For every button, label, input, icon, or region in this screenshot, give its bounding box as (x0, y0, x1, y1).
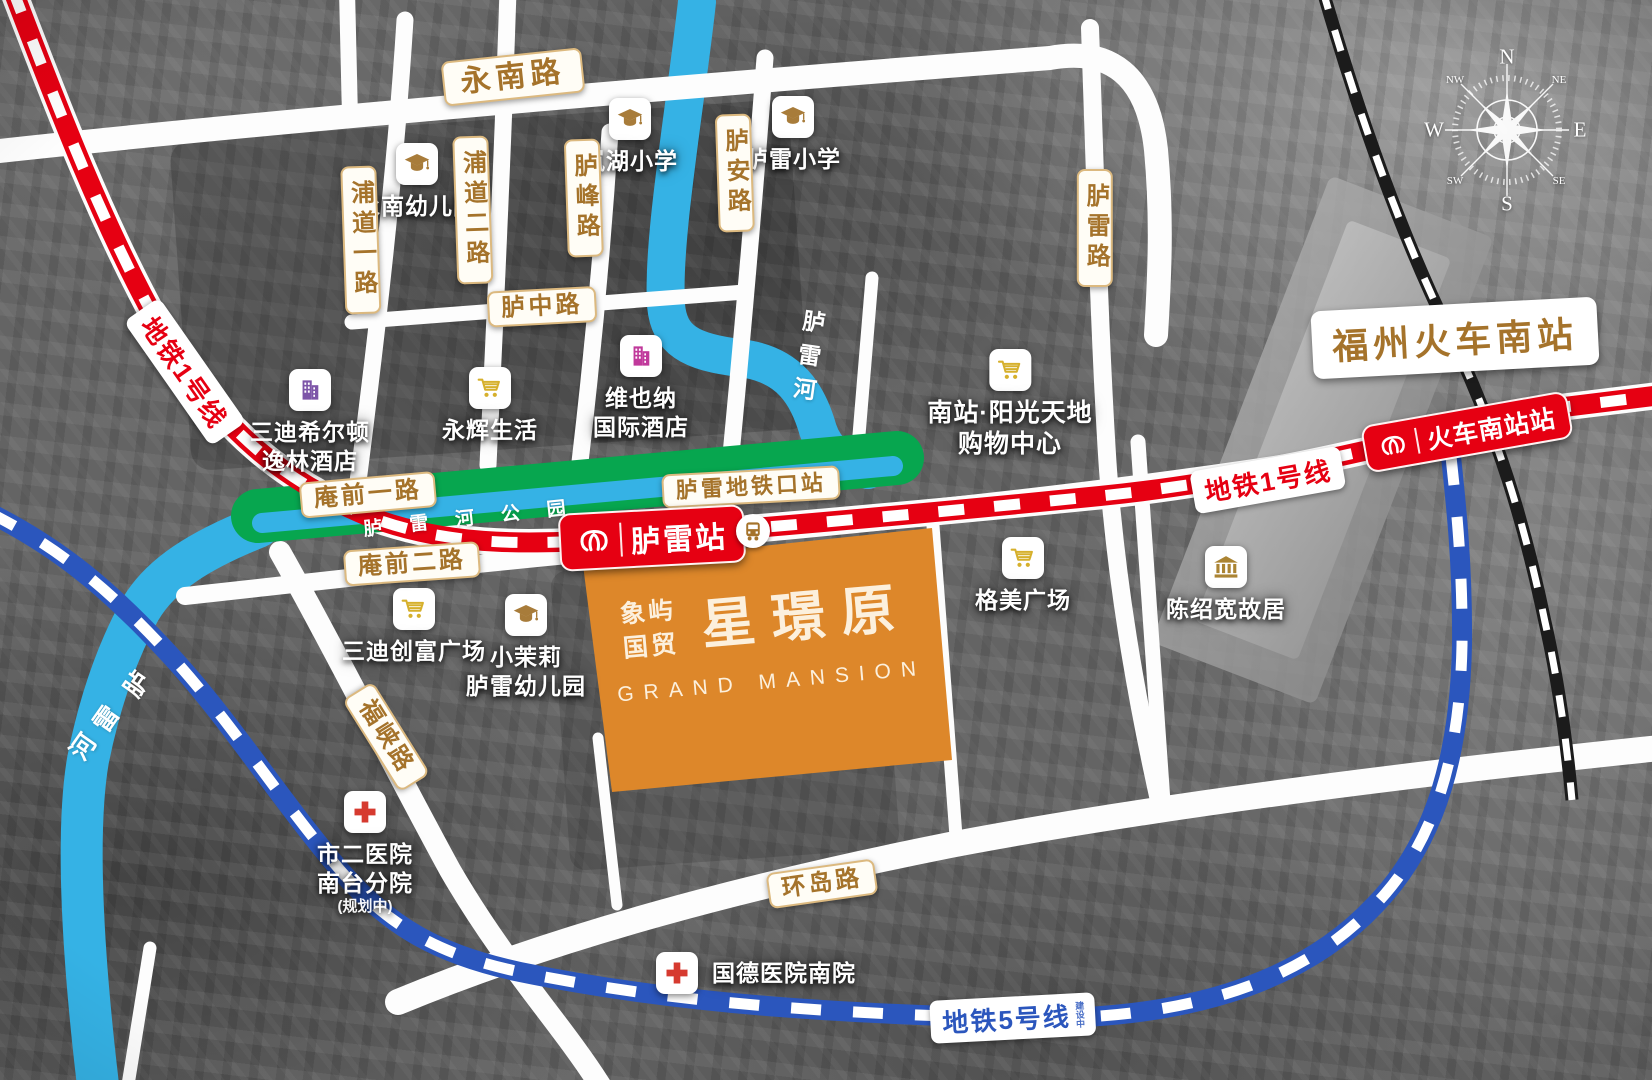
red-cross-icon (656, 952, 698, 994)
poi-hospital2-branch: 市二医院 南台分院 (规划中) (317, 791, 413, 916)
road-label-lufeng: 胪峰路 (564, 138, 604, 257)
poi-label: 市二医院 南台分院 (规划中) (317, 840, 413, 916)
poi-gemei-plaza: 格美广场 (975, 537, 1071, 615)
poi-label: 三迪希尔顿 逸林酒店 (250, 418, 370, 476)
road-label-pudao2: 浦道二路 (452, 135, 494, 284)
compass-se: SE (1553, 175, 1566, 187)
poi-label-line1: 三迪希尔顿 (250, 418, 370, 447)
compass-ne: NE (1552, 74, 1567, 86)
location-map: N E S W NW NE SW SE 永南路 浦道一路 浦道二路 胪峰路 胪安… (0, 0, 1652, 1080)
brand-line1: 象屿 (619, 594, 678, 633)
graduation-cap-icon (396, 143, 438, 185)
graduation-cap-icon (505, 594, 547, 636)
poi-hilton-hotel: 三迪希尔顿 逸林酒店 (250, 369, 370, 476)
bus-icon (741, 519, 765, 543)
road-label-pudao1: 浦道一路 (340, 165, 382, 314)
property-name: 星璟原 (699, 581, 913, 653)
metro-logo-icon (576, 523, 612, 559)
cart-icon (469, 367, 511, 409)
building-icon (289, 369, 331, 411)
lulei-station-badge: 胪雷站 (558, 504, 747, 572)
compass-sw: SW (1447, 175, 1464, 187)
line5-label-text: 地铁5号线 (941, 997, 1071, 1041)
building-icon (620, 335, 662, 377)
classical-building-icon (1205, 546, 1247, 588)
lulei-station-name: 胪雷站 (630, 512, 728, 561)
poi-label: 南站·阳光天地 购物中心 (927, 398, 1092, 461)
poi-sandi-plaza: 三迪创富广场 (342, 588, 486, 666)
line5-status-note: 建设中 (1074, 1001, 1084, 1028)
badge-divider (1414, 428, 1420, 454)
poi-label: 格美广场 (975, 586, 1071, 615)
compass-w: W (1424, 118, 1444, 143)
red-cross-icon (344, 791, 386, 833)
brand-line2: 国贸 (622, 628, 681, 667)
poi-label: 胪雷小学 (745, 145, 841, 174)
road-label-lulei: 胪雷路 (1077, 169, 1113, 287)
poi-label: 小茉莉 胪雷幼儿园 (466, 643, 586, 701)
poi-label-line1: 小茉莉 (466, 643, 586, 672)
poi-label: 永辉生活 (442, 416, 538, 445)
badge-divider (619, 523, 623, 557)
cart-icon (1002, 537, 1044, 579)
poi-jasmine-kindergarten: 小茉莉 胪雷幼儿园 (466, 594, 586, 701)
poi-label-line2: 逸林酒店 (250, 447, 370, 476)
poi-label-line2: 购物中心 (927, 429, 1092, 460)
cart-icon (393, 588, 435, 630)
poi-label-line1: 市二医院 (317, 840, 413, 869)
poi-label-line2: 胪雷幼儿园 (466, 672, 586, 701)
poi-guode-hospital: 国德医院南院 (656, 952, 856, 994)
graduation-cap-icon (609, 98, 651, 140)
road-label-luzhong: 胪中路 (487, 286, 598, 328)
poi-lulei-primary: 胪雷小学 (745, 96, 841, 174)
line5-label: 地铁5号线 建设中 (929, 992, 1096, 1044)
poi-label: 三迪创富广场 (342, 637, 486, 666)
poi-label-line1: 维也纳 (593, 384, 689, 413)
poi-yonghui: 永辉生活 (442, 367, 538, 445)
bus-stop-icon (736, 514, 770, 548)
poi-label: 维也纳 国际酒店 (593, 384, 689, 442)
poi-vienna-hotel: 维也纳 国际酒店 (593, 335, 689, 442)
metro-logo-icon (1376, 428, 1410, 462)
poi-sunshine-mall: 南站·阳光天地 购物中心 (927, 349, 1092, 461)
compass-nw: NW (1446, 74, 1464, 86)
poi-label-line2: 南台分院 (317, 869, 413, 898)
poi-chen-residence: 陈绍宽故居 (1166, 546, 1286, 624)
cart-icon (989, 349, 1031, 391)
poi-label-line1: 南站·阳光天地 (927, 398, 1092, 429)
poi-label-note: (规划中) (317, 898, 413, 917)
compass-e: E (1574, 118, 1587, 143)
compass-n: N (1499, 45, 1514, 70)
compass-s: S (1501, 192, 1513, 217)
road-label-luan: 胪安路 (715, 113, 755, 232)
graduation-cap-icon (772, 96, 814, 138)
poi-label: 国德医院南院 (712, 959, 856, 988)
poi-label: 陈绍宽故居 (1166, 595, 1286, 624)
poi-label-line2: 国际酒店 (593, 413, 689, 442)
